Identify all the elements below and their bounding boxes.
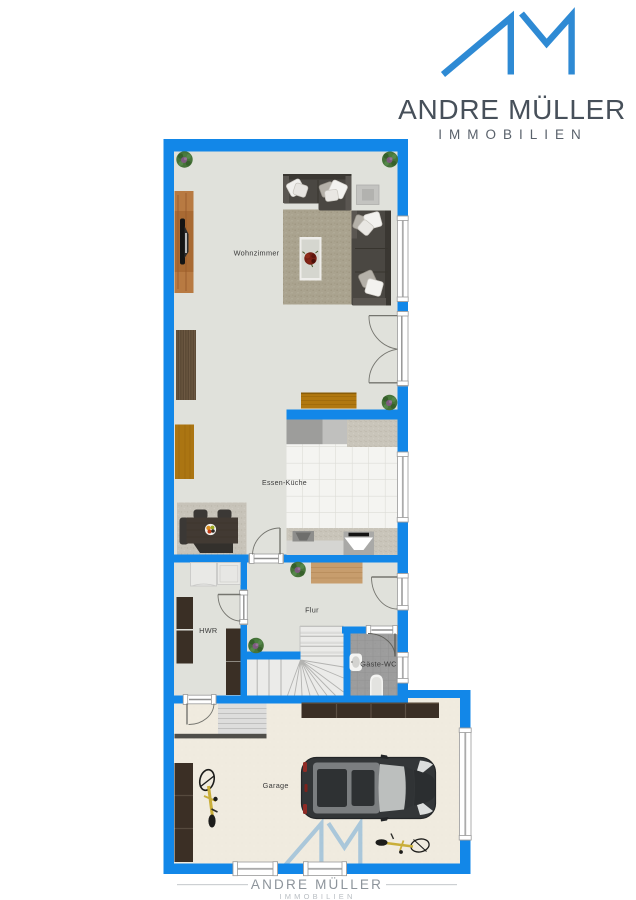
svg-text:Essen-Küche: Essen-Küche [262,480,307,487]
svg-text:HWR: HWR [199,626,217,635]
svg-text:ANDRE MÜLLER: ANDRE MÜLLER [251,877,383,892]
svg-text:IMMOBILIEN: IMMOBILIEN [438,127,588,142]
svg-text:IMMOBILIEN: IMMOBILIEN [279,892,355,900]
svg-text:Gäste-WC: Gäste-WC [360,660,396,669]
svg-text:Wohnzimmer: Wohnzimmer [234,249,280,258]
svg-text:ANDRE MÜLLER: ANDRE MÜLLER [398,94,626,125]
svg-text:Flur: Flur [305,606,319,615]
svg-text:Garage: Garage [263,781,289,790]
